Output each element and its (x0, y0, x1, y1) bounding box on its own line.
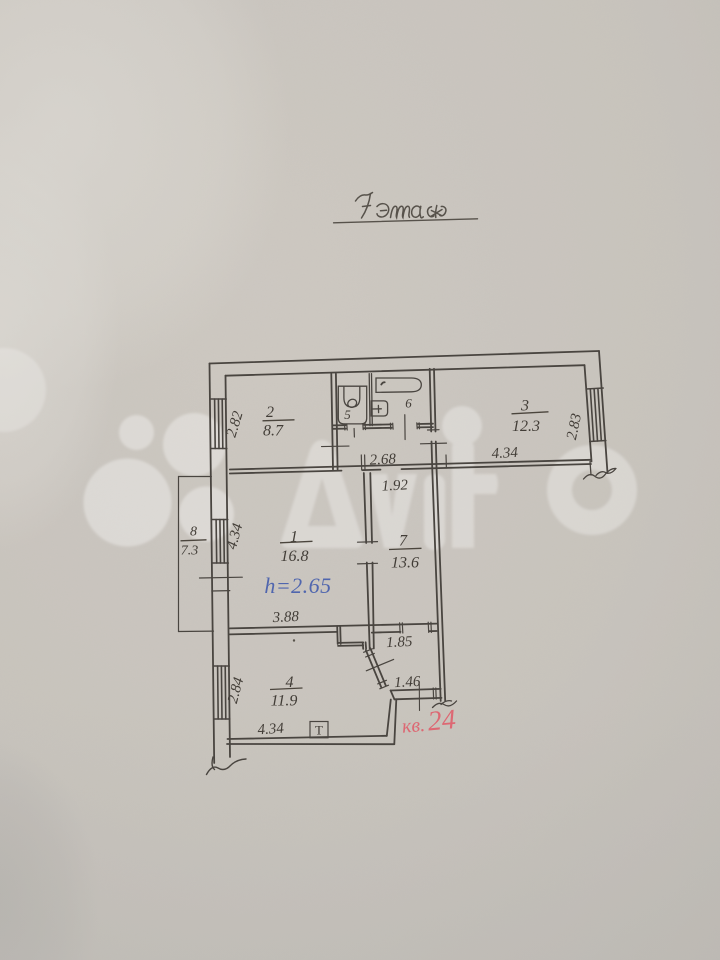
svg-text:1: 1 (290, 529, 298, 546)
svg-text:1.92: 1.92 (381, 477, 409, 494)
svg-text:3: 3 (520, 398, 529, 415)
svg-text:16.8: 16.8 (281, 548, 309, 565)
svg-text:2: 2 (266, 404, 274, 421)
svg-text:7.3: 7.3 (181, 544, 199, 559)
svg-text:13.6: 13.6 (391, 555, 419, 572)
svg-text:2.68: 2.68 (369, 451, 397, 468)
svg-text:8.7: 8.7 (263, 423, 284, 440)
svg-text:T: T (315, 723, 323, 738)
svg-text:7: 7 (399, 533, 408, 550)
svg-text:6: 6 (405, 396, 412, 411)
svg-text:1.85: 1.85 (386, 634, 414, 651)
svg-text:h=2.65: h=2.65 (264, 573, 331, 598)
svg-text:1.46: 1.46 (394, 674, 422, 691)
svg-text:11.9: 11.9 (271, 693, 298, 710)
svg-text:4.34: 4.34 (257, 721, 285, 739)
svg-text:12.3: 12.3 (512, 418, 540, 435)
svg-text:5: 5 (344, 407, 351, 422)
svg-text:4.34: 4.34 (491, 445, 519, 462)
svg-text:8: 8 (190, 525, 197, 540)
svg-text:3.88: 3.88 (271, 609, 300, 626)
